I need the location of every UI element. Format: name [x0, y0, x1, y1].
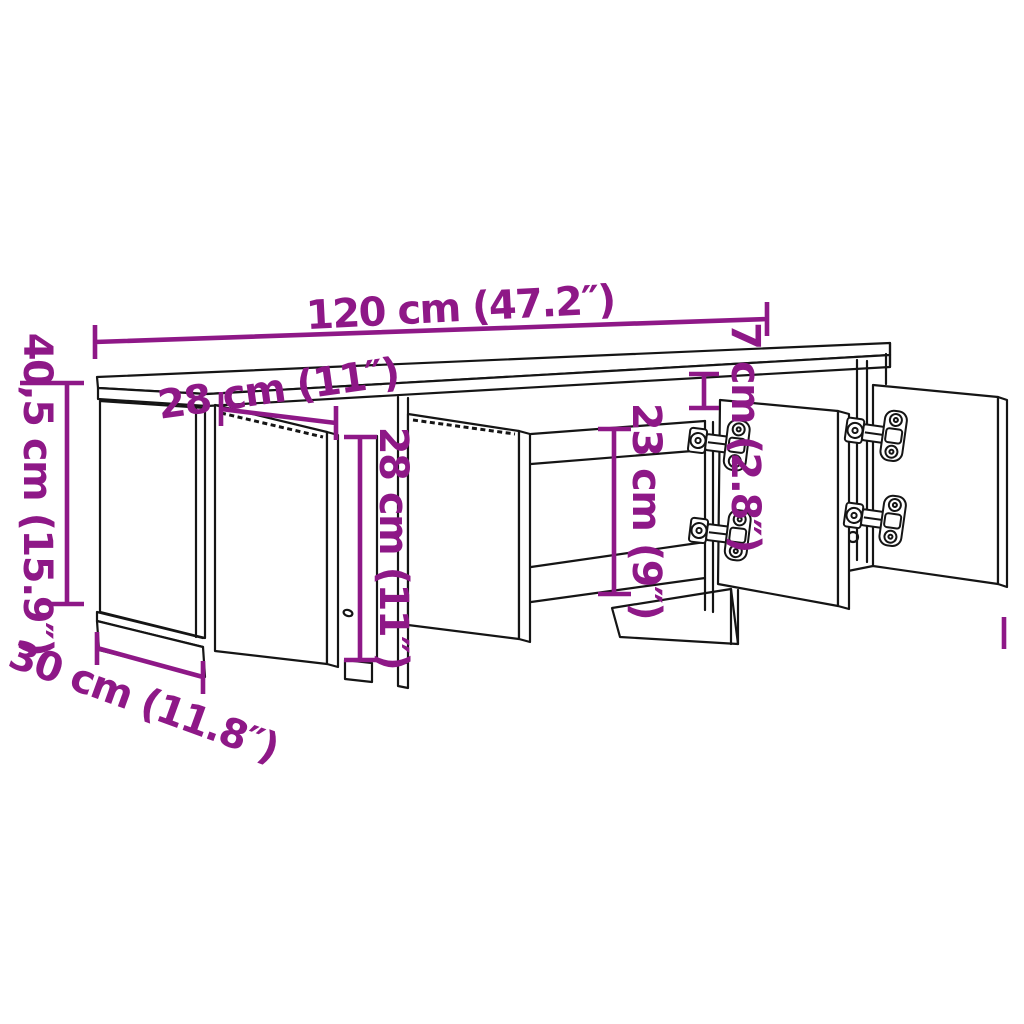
- dimension-overall-width: 120 cm (47.2″): [95, 277, 767, 359]
- door-1-pin-hole: [343, 609, 353, 617]
- door-2-edge: [519, 431, 530, 642]
- door-1-edge: [327, 432, 338, 667]
- divider-1-foot: [345, 660, 372, 682]
- dimension-overall-height: 40,5 cm (15.9″): [14, 333, 84, 656]
- door-4-edge: [998, 397, 1007, 587]
- dimension-label-compartment-height: 23 cm (9″): [623, 403, 669, 619]
- compartment-floor-back-edge: [531, 542, 705, 567]
- door-1: [215, 405, 327, 664]
- dimension-label-top-panel-height: 7 cm (2.8″): [722, 322, 768, 552]
- cabinet-dimension-drawing: 120 cm (47.2″) 28 cm (11″) 40,5 cm (15.9…: [0, 0, 1024, 1024]
- dimension-label-overall-width: 120 cm (47.2″): [305, 277, 616, 339]
- dimension-compartment-height: 23 cm (9″): [598, 403, 669, 619]
- dimension-door-height: 28 cm (11″): [344, 427, 416, 670]
- left-side-panel: [100, 401, 205, 638]
- compartment-top-back-line: [531, 450, 705, 464]
- dimension-label-overall-height: 40,5 cm (15.9″): [14, 333, 60, 656]
- product-dimension-diagram: 120 cm (47.2″) 28 cm (11″) 40,5 cm (15.9…: [0, 0, 1024, 1024]
- door-2: [408, 414, 519, 639]
- dimension-label-door-height: 28 cm (11″): [370, 427, 416, 670]
